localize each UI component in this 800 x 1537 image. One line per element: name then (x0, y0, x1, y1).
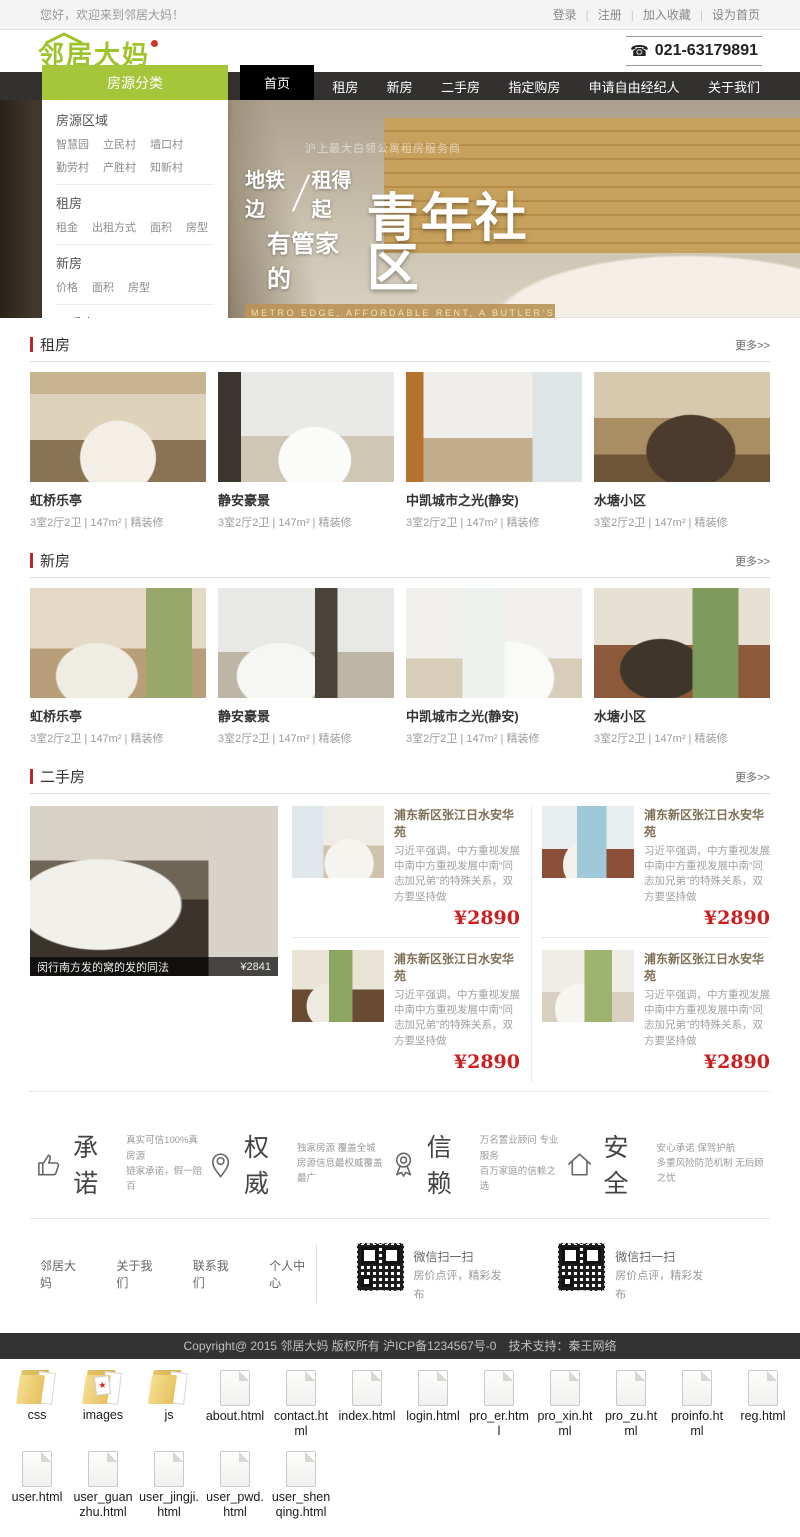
listing-name[interactable]: 水塘小区 (594, 490, 770, 509)
listing-name[interactable]: 虹桥乐亭 (30, 706, 206, 725)
listing-meta: 3室2厅2卫 | 147m² | 精装修 (30, 514, 206, 530)
file-icon: ★ (220, 1451, 250, 1487)
dropdown-item[interactable]: 智慧园 (56, 136, 89, 152)
topbar: 您好，欢迎来到邻居大妈！ 登录注册加入收藏设为首页 (0, 0, 800, 30)
feature-line1: 万名置业顾问 专业服务 (480, 1133, 565, 1163)
file-item[interactable]: ★ user_guanzhu.html (70, 1450, 136, 1521)
listing-meta: 3室2厅2卫 | 147m² | 精装修 (406, 730, 582, 746)
topbar-link[interactable]: 注册 (577, 6, 622, 23)
secondhand-desc: 习近平强调，中方重视发展中南中方重视发展中南“同志加兄弟”的特殊关系，双方要坚持… (394, 988, 520, 1049)
secondhand-card[interactable]: 浦东新区张江日水安华苑 习近平强调，中方重视发展中南中方重视发展中南“同志加兄弟… (292, 950, 520, 1081)
qr-caption-line1: 微信扫一扫 (414, 1247, 511, 1267)
file-item[interactable]: ★ proinfo.html (664, 1369, 730, 1440)
featured-caption: 闵行南方发的窝的发的同法 (37, 959, 169, 975)
dropdown-group-rent: 租房 租金出租方式面积房型 (56, 185, 214, 245)
file-item[interactable]: ★ pro_zu.html (598, 1369, 664, 1440)
main-content: 租房 更多>> 虹桥乐亭 3室2厅2卫 | 147m² | 精装修 静安豪景 3… (30, 334, 770, 1219)
secondhand-desc: 习近平强调，中方重视发展中南中方重视发展中南“同志加兄弟”的特殊关系，双方要坚持… (394, 844, 520, 905)
secondhand-card[interactable]: 浦东新区张江日水安华苑 习近平强调，中方重视发展中南中方重视发展中南“同志加兄弟… (292, 806, 520, 938)
nav-item[interactable]: 申请自由经纪人 (579, 72, 690, 100)
more-link[interactable]: 更多>> (735, 553, 770, 569)
file-item[interactable]: ★ reg.html (730, 1369, 796, 1440)
file-name: user_shenqing.html (270, 1490, 332, 1521)
dropdown-group-secondhand: 二手房 价格面积房型 (56, 305, 214, 318)
nav-item[interactable]: 二手房 (431, 72, 490, 100)
dropdown-item[interactable]: 面积 (92, 279, 114, 295)
file-item[interactable]: ★ images (70, 1369, 136, 1440)
house-icon (564, 1146, 595, 1182)
secondhand-photo[interactable] (542, 806, 634, 878)
listing-photo[interactable] (30, 588, 206, 698)
hero-banner: 房源区域 智慧园立民村墙口村勤劳村产胜村知新村 租房 租金出租方式面积房型 新房… (0, 100, 800, 318)
feature-authority: 权威 独家房源 覆盖全城 房源信息最权威覆盖最广 (205, 1128, 388, 1200)
file-name: proinfo.html (666, 1409, 728, 1440)
section-title: 租房 (30, 334, 70, 355)
secondhand-title[interactable]: 浦东新区张江日水安华苑 (644, 950, 770, 984)
qr-caption-line2: 房价点评，精彩发布 (414, 1267, 511, 1304)
listing-meta: 3室2厅2卫 | 147m² | 精装修 (594, 514, 770, 530)
dropdown-group-title: 新房 (56, 253, 214, 272)
footer-links: 邻居大妈关于我们联系我们个人中心 (40, 1257, 316, 1291)
file-item[interactable]: ★ pro_xin.html (532, 1369, 598, 1440)
listing-photo[interactable] (406, 588, 582, 698)
file-name: login.html (402, 1409, 464, 1425)
main-nav: 房源分类 首页租房新房二手房指定购房申请自由经纪人关于我们 (0, 72, 800, 100)
listing-card[interactable]: 水塘小区 3室2厅2卫 | 147m² | 精装修 (594, 372, 770, 534)
dropdown-item[interactable]: 价格 (56, 279, 78, 295)
listing-name[interactable]: 中凯城市之光(静安) (406, 490, 582, 509)
topbar-link[interactable]: 设为首页 (691, 6, 760, 23)
file-item[interactable]: ★ user.html (4, 1450, 70, 1521)
listing-photo[interactable] (218, 372, 394, 482)
listing-photo[interactable] (594, 372, 770, 482)
file-item[interactable]: ★ pro_er.html (466, 1369, 532, 1440)
feature-line2: 百万家庭的信赖之选 (480, 1164, 565, 1194)
roof-icon (44, 32, 84, 44)
file-icon: ★ (83, 1369, 123, 1405)
file-name: index.html (336, 1409, 398, 1425)
file-name: pro_xin.html (534, 1409, 596, 1440)
file-icon: ★ (149, 1369, 189, 1405)
file-item[interactable]: ★ js (136, 1369, 202, 1440)
listing-card[interactable]: 中凯城市之光(静安) 3室2厅2卫 | 147m² | 精装修 (406, 372, 582, 534)
feature-line1: 独家房源 覆盖全城 (297, 1141, 388, 1156)
file-name: images (72, 1408, 134, 1424)
listing-card[interactable]: 虹桥乐亭 3室2厅2卫 | 147m² | 精装修 (30, 372, 206, 534)
topbar-link[interactable]: 加入收藏 (622, 6, 691, 23)
hero-headline: 青年社区 (367, 195, 555, 294)
file-name: user_guanzhu.html (72, 1490, 134, 1521)
file-icon: ★ (418, 1370, 448, 1406)
qr-code-icon (357, 1243, 404, 1291)
wechat-qr-block: 微信扫一扫 房价点评，精彩发布 (357, 1243, 511, 1305)
dropdown-item[interactable]: 墙口村 (150, 136, 183, 152)
nav-item[interactable]: 指定购房 (498, 72, 570, 100)
hero-text: 沪上最大白领公寓租房服务商 地铁边 租得起 有管家的 青年社区 METRO ED… (245, 140, 555, 318)
secondhand-desc: 习近平强调，中方重视发展中南中方重视发展中南“同志加兄弟”的特殊关系，双方要坚持… (644, 844, 770, 905)
footer-link[interactable]: 个人中心 (269, 1257, 315, 1291)
file-icon: ★ (286, 1370, 316, 1406)
section-rent: 租房 更多>> 虹桥乐亭 3室2厅2卫 | 147m² | 精装修 静安豪景 3… (30, 334, 770, 534)
file-name: css (6, 1408, 68, 1424)
feature-line1: 安心承诺 保驾护航 (657, 1141, 766, 1156)
hero-line2: 有管家的 (267, 224, 357, 294)
hero-english-band: METRO EDGE, AFFORDABLE RENT, A BUTLER'S … (245, 304, 555, 318)
file-name: pro_er.html (468, 1409, 530, 1440)
secondhand-price: ¥2890 (394, 907, 520, 929)
feature-safety: 安全 安心承诺 保驾护航 多重风险防范机制 无后顾之忧 (564, 1128, 766, 1200)
hero-line1b: 租得起 (312, 164, 357, 222)
footer-divider (316, 1245, 317, 1303)
hero-tagline: 沪上最大白领公寓租房服务商 (305, 140, 555, 156)
file-item[interactable]: ★ user_pwd.html (202, 1450, 268, 1521)
qr-caption-line1: 微信扫一扫 (615, 1247, 712, 1267)
footer-link[interactable]: 关于我们 (116, 1257, 162, 1291)
secondhand-card[interactable]: 浦东新区张江日水安华苑 习近平强调，中方重视发展中南中方重视发展中南“同志加兄弟… (542, 950, 770, 1081)
feature-title: 安全 (604, 1134, 630, 1198)
listing-card[interactable]: 静安豪景 3室2厅2卫 | 147m² | 精装修 (218, 588, 394, 750)
section-title: 新房 (30, 550, 70, 571)
section-title: 二手房 (30, 766, 85, 787)
dropdown-group-title: 房源区域 (56, 110, 214, 129)
listing-name[interactable]: 中凯城市之光(静安) (406, 706, 582, 725)
listing-meta: 3室2厅2卫 | 147m² | 精装修 (30, 730, 206, 746)
hero-line1a: 地铁边 (245, 164, 290, 222)
file-icon: ★ (550, 1370, 580, 1406)
file-icon: ★ (88, 1451, 118, 1487)
feature-title: 信赖 (427, 1134, 453, 1198)
listing-meta: 3室2厅2卫 | 147m² | 精装修 (218, 514, 394, 530)
file-name: pro_zu.html (600, 1409, 662, 1440)
category-button[interactable]: 房源分类 (42, 65, 228, 100)
slash-divider (292, 174, 310, 211)
secondhand-desc: 习近平强调，中方重视发展中南中方重视发展中南“同志加兄弟”的特殊关系，双方要坚持… (644, 988, 770, 1049)
features-strip: 承诺 真实可信100%真房源 链家承诺，假一赔百 权威 独家房源 覆盖全城 房源… (30, 1114, 770, 1219)
phone-number: 021-63179891 (655, 42, 758, 60)
file-icon: ★ (154, 1451, 184, 1487)
file-row-1: ★ css ★ images ★ js ★ about.html ★ conta… (4, 1369, 796, 1440)
listing-meta: 3室2厅2卫 | 147m² | 精装修 (218, 730, 394, 746)
copyright-bar: Copyright@ 2015 邻居大妈 版权所有 沪ICP备1234567号-… (0, 1333, 800, 1359)
file-name: js (138, 1408, 200, 1424)
listing-photo[interactable] (406, 372, 582, 482)
listing-photo[interactable] (218, 588, 394, 698)
file-name: user.html (6, 1490, 68, 1506)
topbar-link[interactable]: 登录 (553, 6, 577, 23)
category-dropdown: 房源区域 智慧园立民村墙口村勤劳村产胜村知新村 租房 租金出租方式面积房型 新房… (42, 100, 228, 318)
secondhand-price: ¥2890 (394, 1051, 520, 1073)
secondhand-photo[interactable] (292, 806, 384, 878)
nav-item[interactable]: 关于我们 (698, 72, 770, 100)
dropdown-item[interactable]: 租金 (56, 219, 78, 235)
file-item[interactable]: ★ user_jingji.html (136, 1450, 202, 1521)
dropdown-item[interactable]: 房型 (128, 279, 150, 295)
listing-card[interactable]: 静安豪景 3室2厅2卫 | 147m² | 精装修 (218, 372, 394, 534)
listing-name[interactable]: 静安豪景 (218, 706, 394, 725)
file-icon: ★ (17, 1369, 57, 1405)
file-icon: ★ (616, 1370, 646, 1406)
file-item[interactable]: ★ index.html (334, 1369, 400, 1440)
wechat-qr-block: 微信扫一扫 房价点评，精彩发布 (558, 1243, 712, 1305)
feature-line1: 真实可信100%真房源 (126, 1133, 205, 1163)
qr-caption-line2: 房价点评，精彩发布 (615, 1267, 712, 1304)
more-link[interactable]: 更多>> (735, 769, 770, 785)
file-item[interactable]: ★ login.html (400, 1369, 466, 1440)
file-icon: ★ (286, 1451, 316, 1487)
listing-name[interactable]: 虹桥乐亭 (30, 490, 206, 509)
file-icon: ★ (748, 1370, 778, 1406)
site-footer: 邻居大妈关于我们联系我们个人中心 微信扫一扫 房价点评，精彩发布 微信扫一扫 房… (0, 1219, 800, 1333)
secondhand-card[interactable]: 浦东新区张江日水安华苑 习近平强调，中方重视发展中南中方重视发展中南“同志加兄弟… (542, 806, 770, 938)
dropdown-item[interactable]: 出租方式 (92, 219, 136, 235)
topbar-links: 登录注册加入收藏设为首页 (553, 6, 760, 23)
listing-card[interactable]: 中凯城市之光(静安) 3室2厅2卫 | 147m² | 精装修 (406, 588, 582, 750)
feature-trust: 信赖 万名置业顾问 专业服务 百万家庭的信赖之选 (388, 1128, 565, 1200)
dropdown-group-region: 房源区域 智慧园立民村墙口村勤劳村产胜村知新村 (56, 102, 214, 185)
section-secondhand: 二手房 更多>> 闵行南方发的窝的发的同法 ¥2841 浦东新区张江日水安华苑 … (30, 766, 770, 1092)
file-icon: ★ (682, 1370, 712, 1406)
nav-item[interactable]: 新房 (377, 72, 423, 100)
featured-listing-photo[interactable]: 闵行南方发的窝的发的同法 ¥2841 (30, 806, 278, 976)
file-icon: ★ (22, 1451, 52, 1487)
dropdown-item[interactable]: 产胜村 (103, 159, 136, 175)
listing-meta: 3室2厅2卫 | 147m² | 精装修 (406, 514, 582, 530)
file-name: about.html (204, 1409, 266, 1425)
file-name: contact.html (270, 1409, 332, 1440)
listing-card[interactable]: 虹桥乐亭 3室2厅2卫 | 147m² | 精装修 (30, 588, 206, 750)
feature-line2: 链家承诺，假一赔百 (126, 1164, 205, 1194)
secondhand-photo[interactable] (292, 950, 384, 1022)
file-name: reg.html (732, 1409, 794, 1425)
feature-title: 承诺 (73, 1134, 99, 1198)
secondhand-title[interactable]: 浦东新区张江日水安华苑 (644, 806, 770, 840)
file-explorer: ★ css ★ images ★ js ★ about.html ★ conta… (0, 1359, 800, 1537)
nav-item[interactable]: 首页 (240, 65, 314, 100)
listing-name[interactable]: 静安豪景 (218, 490, 394, 509)
location-pin-icon (205, 1146, 236, 1182)
featured-price: ¥2841 (240, 961, 271, 973)
file-item[interactable]: ★ user_shenqing.html (268, 1450, 334, 1521)
qr-code-icon (558, 1243, 605, 1291)
secondhand-price: ¥2890 (644, 907, 770, 929)
secondhand-title[interactable]: 浦东新区张江日水安华苑 (394, 950, 520, 984)
file-row-2: ★ user.html ★ user_guanzhu.html ★ user_j… (4, 1450, 796, 1521)
dropdown-item[interactable]: 面积 (150, 219, 172, 235)
secondhand-title[interactable]: 浦东新区张江日水安华苑 (394, 806, 520, 840)
dropdown-item[interactable]: 勤劳村 (56, 159, 89, 175)
file-name: user_jingji.html (138, 1490, 200, 1521)
listing-card[interactable]: 水塘小区 3室2厅2卫 | 147m² | 精装修 (594, 588, 770, 750)
feature-title: 权威 (244, 1134, 270, 1198)
dropdown-group-new: 新房 价格面积房型 (56, 245, 214, 305)
dropdown-item[interactable]: 立民村 (103, 136, 136, 152)
feature-promise: 承诺 真实可信100%真房源 链家承诺，假一赔百 (34, 1128, 205, 1200)
file-icon: ★ (484, 1370, 514, 1406)
file-item[interactable]: ★ about.html (202, 1369, 268, 1440)
file-item[interactable]: ★ contact.html (268, 1369, 334, 1440)
secondhand-photo[interactable] (542, 950, 634, 1022)
feature-line2: 多重风险防范机制 无后顾之忧 (657, 1156, 766, 1186)
listing-photo[interactable] (30, 372, 206, 482)
file-icon: ★ (352, 1370, 382, 1406)
listing-meta: 3室2厅2卫 | 147m² | 精装修 (594, 730, 770, 746)
qr-area: 微信扫一扫 房价点评，精彩发布 微信扫一扫 房价点评，精彩发布 (357, 1243, 760, 1305)
secondhand-price: ¥2890 (644, 1051, 770, 1073)
contact-phone: ☎ 021-63179891 (626, 36, 762, 66)
footer-link[interactable]: 联系我们 (193, 1257, 239, 1291)
dropdown-group-title: 租房 (56, 193, 214, 212)
thumb-up-icon (34, 1146, 65, 1182)
file-name: user_pwd.html (204, 1490, 266, 1521)
logo-dot (151, 40, 158, 47)
more-link[interactable]: 更多>> (735, 337, 770, 353)
feature-line2: 房源信息最权威覆盖最广 (297, 1156, 388, 1186)
listing-name[interactable]: 水塘小区 (594, 706, 770, 725)
medal-icon (388, 1146, 419, 1182)
footer-link[interactable]: 邻居大妈 (40, 1257, 86, 1291)
file-item[interactable]: ★ css (4, 1369, 70, 1440)
nav-item[interactable]: 租房 (322, 72, 368, 100)
dropdown-group-title: 二手房 (56, 313, 214, 318)
listing-photo[interactable] (594, 588, 770, 698)
nav-list: 首页租房新房二手房指定购房申请自由经纪人关于我们 (240, 65, 770, 100)
file-icon: ★ (220, 1370, 250, 1406)
dropdown-item[interactable]: 知新村 (150, 159, 183, 175)
welcome-text: 您好，欢迎来到邻居大妈！ (40, 6, 184, 23)
section-new: 新房 更多>> 虹桥乐亭 3室2厅2卫 | 147m² | 精装修 静安豪景 3… (30, 550, 770, 750)
phone-icon: ☎ (630, 42, 649, 60)
dropdown-item[interactable]: 房型 (186, 219, 208, 235)
